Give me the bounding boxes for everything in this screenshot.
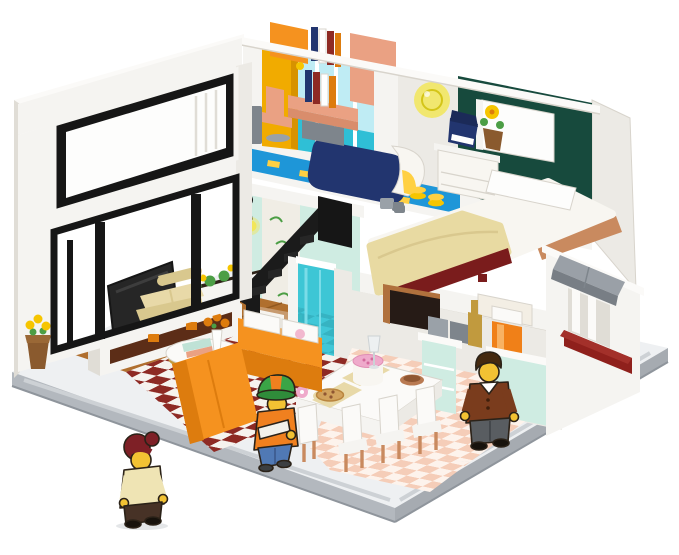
brick-house-model xyxy=(0,0,679,555)
typewriter xyxy=(448,110,478,148)
cake xyxy=(353,355,383,387)
gold-bottle xyxy=(468,312,482,348)
bowl xyxy=(400,375,424,386)
minifigure-woman xyxy=(116,432,168,530)
product-photo-stage xyxy=(0,0,679,555)
east-gable xyxy=(592,100,636,290)
macaron-pillow xyxy=(295,329,305,339)
desk-flower xyxy=(296,62,304,70)
round-wall-light xyxy=(414,82,450,118)
